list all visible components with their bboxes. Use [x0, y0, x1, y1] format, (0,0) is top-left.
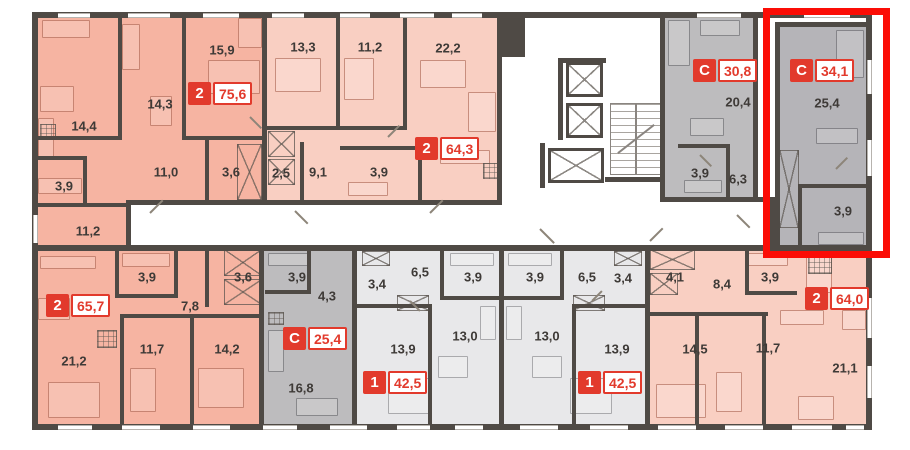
wall-segment [35, 203, 128, 207]
furniture-outline [480, 306, 496, 340]
furniture-outline [275, 58, 321, 92]
furniture-outline [42, 20, 90, 38]
furniture-outline [122, 24, 140, 70]
furniture-outline [198, 368, 244, 408]
room-area-label: 11,2 [358, 40, 383, 55]
wardrobe-x-symbol [614, 251, 642, 266]
wall-segment [605, 177, 665, 182]
wardrobe-x-symbol [573, 295, 605, 311]
wardrobe-x-symbol [237, 144, 262, 200]
furniture-outline [716, 372, 742, 412]
furniture-outline [268, 253, 308, 266]
wall-segment [558, 58, 563, 140]
furniture-outline [438, 356, 468, 378]
wall-segment [678, 144, 728, 148]
room-area-label: 22,2 [435, 41, 460, 56]
wall-segment [572, 308, 576, 426]
wardrobe-x-symbol [362, 251, 390, 266]
wall-segment [502, 296, 564, 300]
selected-apartment-highlight [763, 8, 890, 258]
furniture-outline [508, 253, 552, 266]
wall-segment [182, 136, 264, 140]
room-area-label: 3,9 [526, 270, 544, 285]
wall-segment [265, 290, 311, 294]
wall-segment [126, 200, 131, 250]
room-area-label: 11,7 [756, 341, 781, 356]
furniture-outline [506, 306, 522, 340]
window-opening [846, 425, 864, 430]
apartment-area-label: 64,3 [440, 137, 479, 160]
wall-segment [645, 251, 650, 424]
apartment-area-label: 42,5 [603, 371, 642, 394]
wall-segment [300, 142, 304, 204]
wall-segment [762, 316, 766, 426]
room-area-label: 16,8 [288, 381, 313, 396]
furniture-outline [348, 182, 388, 196]
wall-segment [205, 251, 209, 307]
wall-segment [428, 308, 432, 426]
elevator-shaft [548, 148, 604, 183]
window-opening [455, 425, 483, 430]
window-opening [128, 13, 170, 18]
furniture-outline [468, 92, 496, 132]
apartment-badge[interactable]: 265,7 [46, 294, 110, 317]
wall-segment [648, 312, 768, 316]
wall-segment [259, 251, 264, 424]
room-area-label: 21,1 [832, 361, 857, 376]
furniture-outline [268, 330, 284, 372]
window-opening [58, 425, 92, 430]
furniture-outline [684, 180, 722, 193]
apartment-badge[interactable]: С25,4 [283, 327, 347, 350]
wall-segment [440, 251, 444, 300]
window-opening [122, 425, 160, 430]
room-area-label: 13,0 [452, 329, 477, 344]
room-area-label: 7,8 [181, 299, 199, 314]
wall-segment [182, 12, 186, 140]
window-opening [452, 13, 482, 18]
room-area-label: 14,4 [71, 119, 96, 134]
wall-segment [499, 251, 504, 424]
room-area-label: 2,5 [272, 166, 290, 181]
apartment-area-label: 64,0 [830, 287, 869, 310]
apartment-badge[interactable]: 142,5 [578, 371, 642, 394]
wall-segment [745, 251, 749, 295]
room-area-label: 13,9 [390, 342, 415, 357]
wardrobe-x-symbol [650, 249, 695, 270]
room-area-label: 15,9 [209, 43, 234, 58]
window-opening [520, 425, 558, 430]
door-swing-line [539, 228, 555, 244]
wall-segment [560, 251, 564, 300]
wall-segment [352, 251, 357, 424]
wall-segment [262, 12, 267, 205]
room-area-label: 13,9 [604, 342, 629, 357]
window-opening [792, 425, 832, 430]
apartment-type-label: 2 [805, 287, 828, 310]
wall-segment [83, 156, 87, 206]
window-opening [193, 425, 230, 430]
wall-segment [662, 197, 777, 202]
apartment-area-label: 30,8 [718, 59, 757, 82]
apartment-badge[interactable]: 264,3 [415, 137, 479, 160]
apartment-type-label: 1 [578, 371, 601, 394]
window-opening [867, 366, 872, 398]
wall-segment [35, 136, 120, 140]
wall-segment [307, 251, 311, 293]
room-area-label: 11,7 [140, 342, 165, 357]
room-area-label: 21,2 [61, 354, 86, 369]
room-area-label: 3,9 [761, 270, 779, 285]
apartment-type-label: С [283, 327, 306, 350]
wall-segment [440, 296, 502, 300]
wall-segment [128, 200, 502, 205]
wall-segment [753, 12, 758, 202]
room-area-label: 11,0 [154, 165, 179, 180]
room-area-label: 13,3 [290, 40, 315, 55]
furniture-outline [40, 86, 74, 112]
wall-segment [660, 12, 665, 202]
room-area-label: 20,4 [725, 95, 750, 110]
window-opening [400, 13, 434, 18]
room-area-label: 3,4 [368, 277, 386, 292]
room-area-label: 14,2 [214, 342, 239, 357]
apartment-area-label: 75,6 [213, 82, 252, 105]
room-area-label: 6,3 [729, 172, 747, 187]
room-area-label: 4,1 [666, 270, 684, 285]
furniture-outline [532, 356, 562, 378]
room-area-label: 6,5 [411, 265, 429, 280]
staircase [610, 103, 662, 175]
room-area-label: 11,2 [76, 224, 101, 239]
wall-segment [205, 140, 209, 204]
apartment-area-label: 42,5 [388, 371, 427, 394]
room-area-label: 3,6 [222, 165, 240, 180]
window-opening [725, 425, 763, 430]
apartment-type-label: 2 [415, 137, 438, 160]
apartment-area-label: 65,7 [71, 294, 110, 317]
window-opening [658, 425, 696, 430]
apartment-badge[interactable]: 275,6 [188, 82, 252, 105]
elevator-shaft [566, 103, 603, 138]
furniture-outline [420, 60, 466, 88]
apartment-type-label: 2 [46, 294, 69, 317]
furniture-outline [842, 310, 866, 330]
floor-plan: 275,615,914,314,411,03,63,911,2264,313,3… [0, 0, 910, 450]
apartment-badge[interactable]: С30,8 [693, 59, 757, 82]
furniture-outline [780, 310, 824, 325]
window-opening [397, 425, 430, 430]
wall-segment [403, 12, 407, 130]
door-swing-line [649, 228, 663, 242]
wall-segment [190, 318, 194, 426]
room-area-label: 14,5 [682, 342, 707, 357]
window-opening [697, 13, 741, 18]
wall-segment [340, 146, 422, 150]
kitchen-fixture [808, 256, 832, 274]
window-opening [263, 425, 297, 430]
room-area-label: 3,9 [288, 270, 306, 285]
room-area-label: 3,4 [614, 271, 632, 286]
furniture-outline [344, 58, 374, 100]
wall-segment [572, 304, 649, 308]
wall-segment [118, 12, 122, 140]
room-area-label: 13,0 [534, 329, 559, 344]
furniture-outline [700, 20, 740, 36]
wall-segment [174, 251, 178, 298]
furniture-outline [130, 368, 156, 412]
apartment-badge[interactable]: 264,0 [805, 287, 869, 310]
furniture-outline [798, 396, 834, 420]
furniture-outline [450, 253, 494, 266]
room-area-label: 3,9 [691, 166, 709, 181]
room-area-label: 14,3 [147, 97, 172, 112]
wall-segment [558, 58, 606, 63]
furniture-outline [48, 382, 100, 418]
wall-segment [267, 126, 407, 130]
window-opening [272, 13, 304, 18]
apartment-type-label: 1 [363, 371, 386, 394]
kitchen-fixture [97, 330, 117, 348]
wall-segment [120, 318, 124, 426]
wall-segment [35, 156, 87, 160]
furniture-outline [668, 20, 690, 66]
window-opening [340, 13, 370, 18]
wall-segment [695, 316, 699, 426]
room-area-label: 3,9 [138, 270, 156, 285]
room-area-label: 3,6 [234, 270, 252, 285]
apartment-type-label: 2 [188, 82, 211, 105]
apartment-area-label: 25,4 [308, 327, 347, 350]
furniture-outline [40, 256, 96, 269]
wardrobe-x-symbol [268, 131, 295, 157]
elevator-shaft [566, 62, 603, 97]
room-area-label: 3,9 [55, 179, 73, 194]
wall-segment [355, 304, 432, 308]
room-area-label: 9,1 [309, 165, 327, 180]
window-opening [203, 13, 239, 18]
room-area-label: 3,9 [464, 270, 482, 285]
furniture-outline [296, 398, 338, 416]
room-area-label: 8,4 [713, 277, 731, 292]
wall-segment [336, 12, 340, 130]
window-opening [590, 425, 628, 430]
wall-segment [540, 143, 545, 188]
room-area-label: 4,3 [318, 289, 336, 304]
furniture-outline [238, 18, 262, 48]
window-opening [58, 13, 90, 18]
wall-segment [115, 294, 177, 298]
door-swing-line [736, 214, 750, 228]
furniture-outline [690, 118, 724, 136]
wall-segment [497, 15, 525, 57]
window-opening [33, 215, 38, 243]
kitchen-fixture [268, 312, 284, 325]
furniture-outline [122, 253, 170, 267]
door-swing-line [294, 210, 308, 224]
room-area-label: 6,5 [578, 270, 596, 285]
apartment-badge[interactable]: 142,5 [363, 371, 427, 394]
apartment-type-label: С [693, 59, 716, 82]
wall-segment [745, 291, 797, 295]
wall-segment [115, 251, 119, 298]
window-opening [330, 425, 367, 430]
room-area-label: 3,9 [370, 165, 388, 180]
